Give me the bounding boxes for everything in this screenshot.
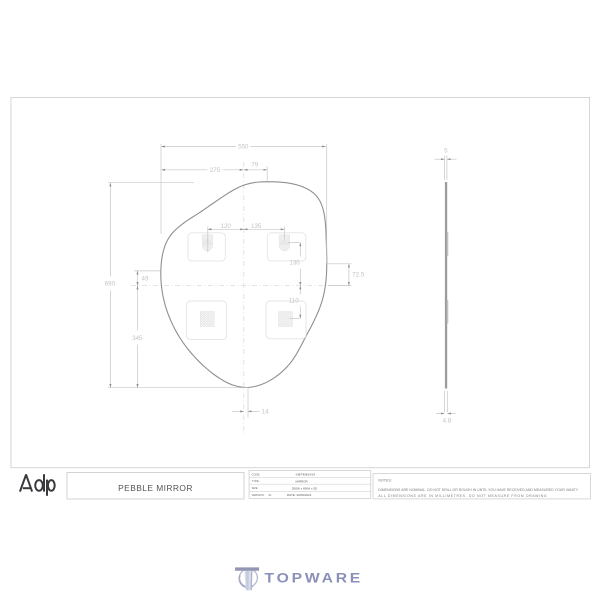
svg-text:ALL DIMENSIONS ARE IN MILLIMET: ALL DIMENSIONS ARE IN MILLIMETRES. DO NO… <box>378 494 547 498</box>
svg-text:49: 49 <box>142 275 149 282</box>
svg-text:MIRROR: MIRROR <box>296 479 309 483</box>
svg-text:14: 14 <box>262 409 269 416</box>
svg-text:79: 79 <box>251 162 258 169</box>
svg-text:4.8: 4.8 <box>443 417 452 424</box>
svg-text:72.5: 72.5 <box>352 271 365 278</box>
svg-text:01: 01 <box>269 493 272 497</box>
svg-text:275: 275 <box>210 167 221 174</box>
svg-text:VERSION:: VERSION: <box>252 493 265 497</box>
svg-text:CODE:: CODE: <box>252 472 261 476</box>
svg-text:550W x 690H x 5D: 550W x 690H x 5D <box>292 486 318 490</box>
svg-text:SIZE:: SIZE: <box>252 486 259 490</box>
svg-text:690: 690 <box>105 281 116 288</box>
svg-text:345: 345 <box>132 335 143 342</box>
svg-text:SMPEB5069: SMPEB5069 <box>296 473 316 477</box>
svg-text:DATE: 20/09/2021: DATE: 20/09/2021 <box>287 493 312 497</box>
svg-text:110: 110 <box>289 298 299 305</box>
svg-text:TYPE:: TYPE: <box>252 479 260 483</box>
svg-text:NOTES:: NOTES: <box>378 479 392 483</box>
svg-text:135: 135 <box>251 223 262 230</box>
svg-text:DIMENSIONS ARE NOMINAL. DO NOT: DIMENSIONS ARE NOMINAL. DO NOT DRILL OR … <box>378 488 579 492</box>
svg-text:550: 550 <box>238 144 249 151</box>
svg-text:130: 130 <box>289 260 300 267</box>
svg-text:120: 120 <box>221 223 232 230</box>
svg-text:TOPWARE: TOPWARE <box>265 571 364 586</box>
svg-text:PEBBLE MIRROR: PEBBLE MIRROR <box>118 483 193 493</box>
svg-text:5: 5 <box>444 147 448 154</box>
